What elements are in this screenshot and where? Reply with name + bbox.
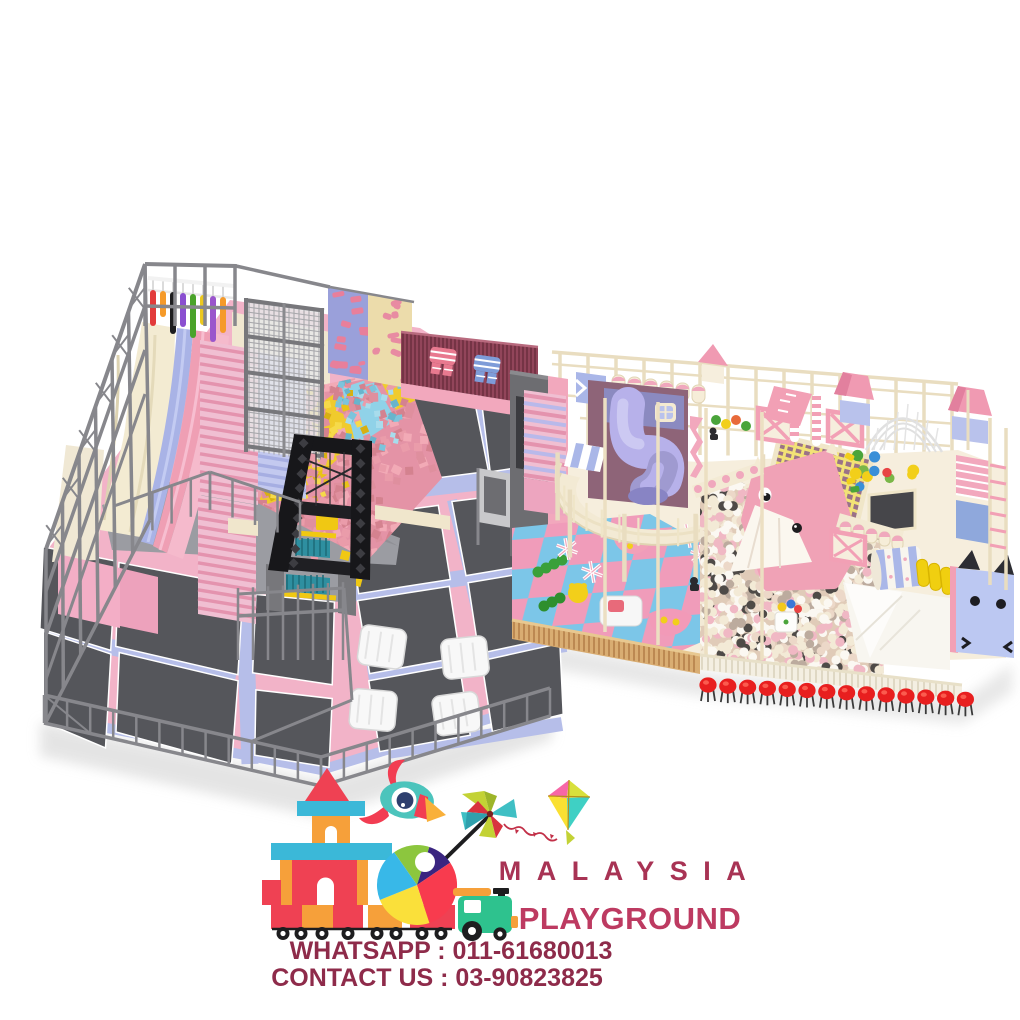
svg-text:WHATSAPP : 011-61680013: WHATSAPP : 011-61680013 — [290, 937, 613, 965]
svg-text:CONTACT US : 03-90823825: CONTACT US : 03-90823825 — [271, 964, 603, 992]
svg-text:MALAYSIA: MALAYSIA — [499, 856, 762, 886]
svg-text:PLAYGROUND: PLAYGROUND — [519, 901, 742, 936]
